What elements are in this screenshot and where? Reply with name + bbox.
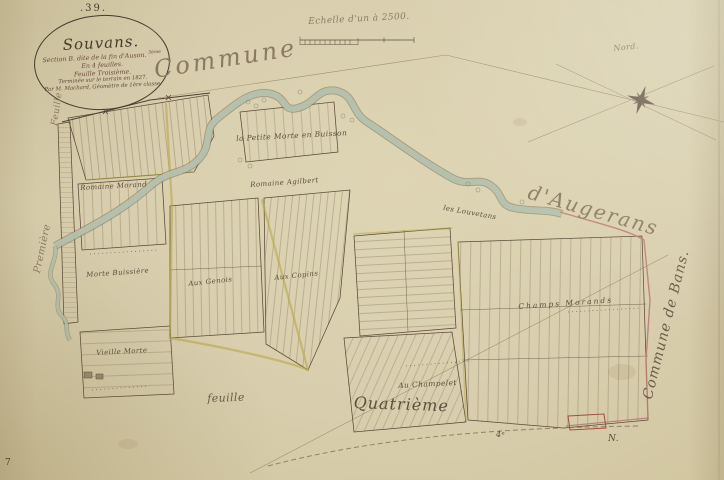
parcel-blocks [58, 95, 648, 432]
neighbor-sheet-bottom-quatrieme: Quatrième [353, 393, 449, 415]
bottom-right-mark-1: 4ᵉ [496, 430, 505, 439]
scale-bar [300, 37, 414, 46]
parcel-block [458, 236, 648, 428]
corner-mark: 7 [5, 458, 11, 468]
cadastral-map-sheet: .39. Souvans. Section B. dite de la fin … [0, 0, 724, 480]
bottom-right-mark-2: N. [608, 434, 619, 444]
parcel-block [80, 326, 174, 398]
neighbor-sheet-bottom-feuille: feuille [207, 391, 245, 405]
dashed-road [268, 426, 640, 466]
compass-rose [622, 81, 660, 119]
sheet-number: .39. [80, 3, 107, 14]
parcel-block [58, 122, 78, 324]
parcel-block [354, 228, 456, 336]
